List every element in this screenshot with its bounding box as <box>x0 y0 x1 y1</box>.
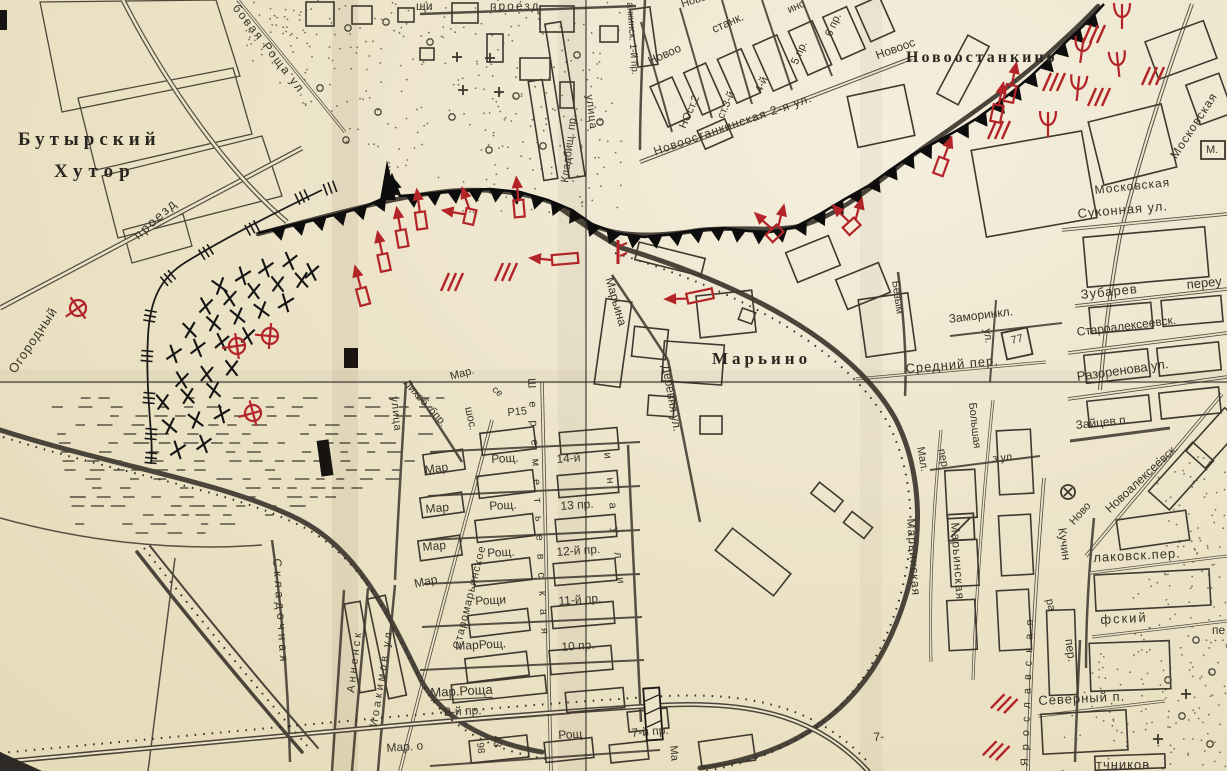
street-label: лаковск.пер. <box>1093 546 1181 564</box>
street-label: переу <box>1186 274 1222 291</box>
street-label: проезд <box>490 0 541 12</box>
street-label: улица <box>583 94 598 130</box>
street-label: 4-й <box>754 75 771 94</box>
street-label: улица <box>388 396 403 432</box>
street-label: фский <box>1100 611 1148 626</box>
street-label: Кладбищ. пр. <box>560 114 579 183</box>
street-label: Шереметьевская <box>525 378 550 647</box>
street-label: ул. <box>981 328 993 344</box>
street-label: М. <box>1206 145 1218 156</box>
street-label: Заморинкл. <box>948 305 1014 325</box>
street-label: Староалексеевск. <box>1076 314 1177 338</box>
street-label: бовая Роща ул. <box>231 2 311 100</box>
street-label: Ново <box>1068 501 1094 528</box>
street-label: станк. <box>710 10 745 34</box>
street-label: 14-й <box>556 451 581 465</box>
street-label: Большая <box>966 402 982 449</box>
street-label: Зайцев п. <box>1075 413 1130 431</box>
street-label: проезд <box>131 196 180 242</box>
street-label: Безым <box>889 280 905 315</box>
street-label: Рощ. <box>489 499 517 512</box>
street-label: 77 <box>1010 333 1024 346</box>
street-label: 98 <box>474 742 485 754</box>
street-label: Суконная ул. <box>1077 199 1168 220</box>
street-label: Ма <box>667 745 680 761</box>
street-label: Рощ. <box>487 546 515 559</box>
street-label: 10 пр. <box>561 639 595 653</box>
street-label: Мар <box>424 461 449 476</box>
street-label: Лихоб. бпр. <box>401 378 448 429</box>
street-label: 8-й пр. <box>444 704 482 718</box>
district-label: Хутор <box>54 162 136 181</box>
district-label: Марьино <box>712 350 811 367</box>
street-label: пер. <box>1063 638 1078 663</box>
street-label: Марьинская <box>949 522 966 600</box>
street-label: з ул. <box>992 452 1016 465</box>
street-label: Кучин <box>1056 527 1072 561</box>
street-label: пе <box>1212 624 1225 636</box>
street-label: Зубарев <box>1080 282 1138 301</box>
street-label: 11-й пр. <box>558 592 602 607</box>
street-label: Средний пер. <box>905 354 999 375</box>
street-label: шос. <box>462 406 478 431</box>
street-label: Мар <box>422 539 446 553</box>
street-label: инс <box>786 0 807 16</box>
street-label: 5 пр. <box>790 40 810 67</box>
street-label: анкинск. 1-й пр. <box>624 2 639 75</box>
street-label: Складочная <box>271 558 290 666</box>
street-label: Мал. <box>914 446 929 472</box>
street-label: 43 <box>490 735 502 748</box>
street-label: Мар. о <box>386 739 424 754</box>
street-label: Разоренова ул. <box>1076 357 1169 383</box>
street-label: 13 пр. <box>560 498 594 512</box>
street-label: щи <box>416 0 433 12</box>
street-label: НОст.2 <box>678 94 702 130</box>
street-label: 7- <box>873 730 884 743</box>
street-label: Марьина <box>603 276 628 327</box>
street-label: Мар <box>413 573 438 590</box>
street-label: Деревня ул. <box>660 364 683 432</box>
street-label: Р15 <box>507 406 527 419</box>
map-labels-layer: БутырскийХуторНовоостанкиноМарьинобовая … <box>0 0 1227 771</box>
street-label: Марьинская <box>905 518 922 596</box>
street-label: Мар.Роща <box>430 683 493 701</box>
street-label: 7-й пр. <box>631 724 669 739</box>
street-label: 6 пр. <box>824 12 844 39</box>
street-label: Иоакимов ул <box>369 629 395 728</box>
street-label: тчников <box>1096 758 1150 771</box>
street-label: Мар <box>425 501 449 515</box>
street-label: Новоалексеевск. <box>1103 442 1180 515</box>
street-label: Новоо <box>646 42 683 67</box>
street-label: Северный п. <box>1038 689 1125 707</box>
street-label: Анненск <box>346 629 365 693</box>
street-label: Мар. <box>449 366 476 383</box>
street-label: ра <box>1043 598 1056 612</box>
district-label: Бутырский <box>18 130 161 149</box>
street-label: Ярославская <box>1020 612 1036 767</box>
street-label: Рощи <box>475 593 506 607</box>
street-label: Московская <box>1094 176 1171 196</box>
street-label: се <box>490 385 505 399</box>
historical-map: БутырскийХуторНовоостанкиноМарьинобовая … <box>0 0 1227 771</box>
district-label: Новоостанкино <box>906 50 1058 66</box>
street-label: Рощ <box>558 728 583 741</box>
street-label: и н а у л и <box>601 452 627 592</box>
street-label: Рощ. <box>491 452 519 465</box>
street-label: 12-й пр. <box>556 543 601 558</box>
street-label: пер <box>935 448 950 468</box>
street-label: Огородный <box>6 305 59 376</box>
street-label: Новос <box>680 0 713 10</box>
